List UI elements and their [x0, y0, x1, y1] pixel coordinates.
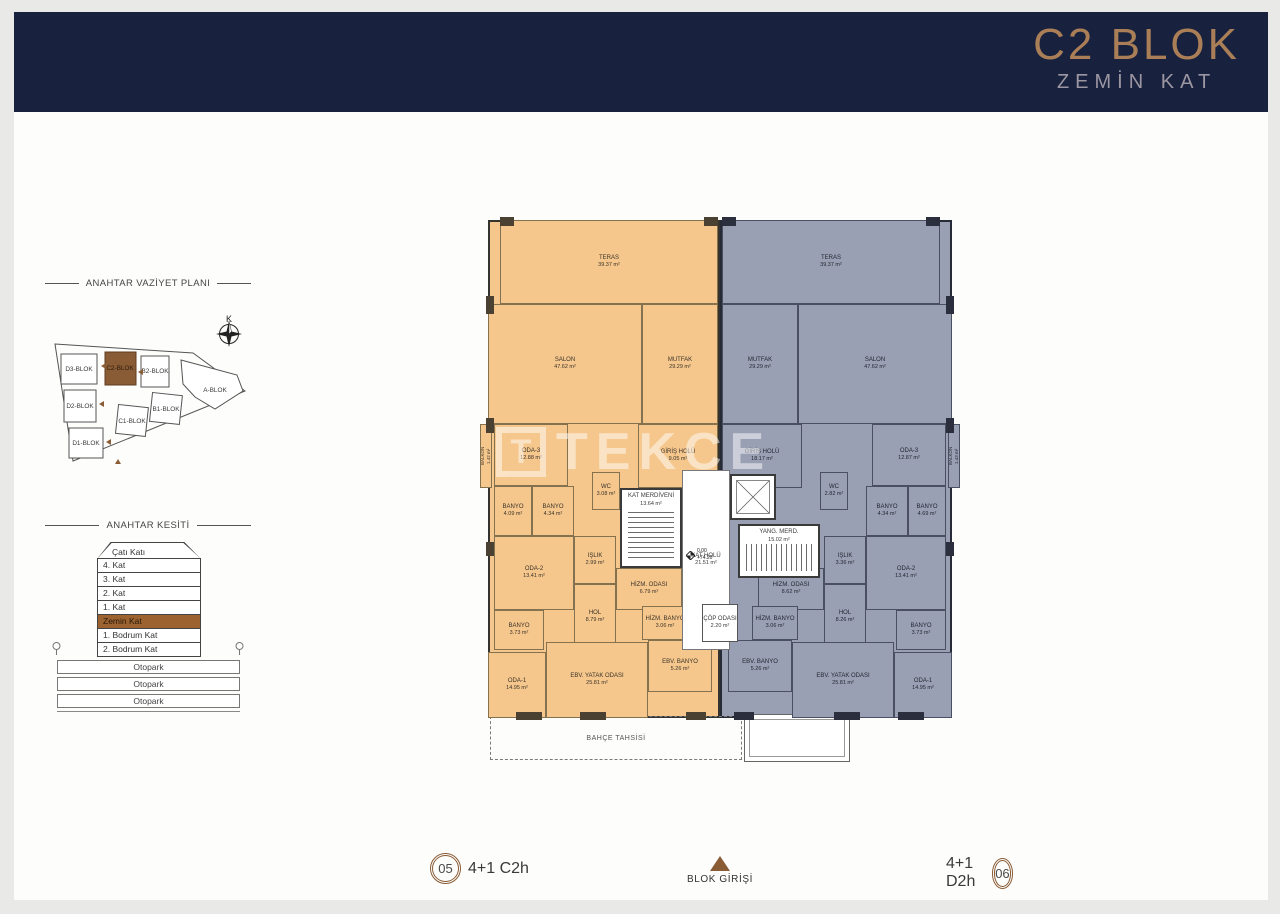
wall-pier [734, 712, 754, 720]
svg-text:D1-BLOK: D1-BLOK [72, 440, 100, 447]
parking-row: Otopark [57, 660, 240, 674]
room-banyo: BANYO4.09 m² [494, 486, 532, 536]
room-oda-1: ODA-114.95 m² [894, 652, 952, 718]
room-teras: TERAS39.37 m² [722, 220, 940, 304]
room-banyo: BANYO4.34 m² [866, 486, 908, 536]
site-plan-map: D3-BLOK C2-BLOK B2-BLOK A-BLOK D2-BLOK B… [45, 296, 251, 468]
room-hol: HOL8.26 m² [824, 584, 866, 650]
floor-plan: 0.00 +74.20 BAHÇE TAHSİSİ T TEKCE TERAS3… [480, 212, 970, 764]
site-plan-header: ANAHTAR VAZİYET PLANI [45, 278, 251, 289]
room-hi-zm-odasi: HİZM. ODASI6.79 m² [616, 568, 682, 610]
wall-pier [500, 217, 514, 226]
floor-row: 2. Kat [97, 586, 201, 601]
room-teras: TERAS39.37 m² [500, 220, 718, 304]
room-banyo: BANYO4.34 m² [532, 486, 574, 536]
entrance-canopy [744, 714, 850, 762]
room-elevator [730, 474, 776, 520]
unit-type-label: 4+1 D2h [946, 855, 985, 891]
room-yang-merd: YANG. MERD.15.02 m² [738, 524, 820, 578]
room-oda-3: ODA-312.88 m² [494, 424, 568, 486]
room-wc: WC3.08 m² [592, 472, 620, 510]
room-ebv-yatak-odasi: EBV. YATAK ODASI25.81 m² [792, 642, 894, 718]
page: C2 BLOK ZEMİN KAT ANAHTAR VAZİYET PLANI [0, 0, 1280, 914]
room-p-odasi: ÇÖP ODASI2.20 m² [702, 604, 738, 642]
unit-type-label: 4+1 C2h [468, 860, 529, 878]
ground-baseline [57, 711, 240, 712]
wall-pier [834, 712, 860, 720]
unit-number-circle: 06 [994, 860, 1012, 887]
key-section-diagram: Çatı Katı 4. Kat3. Kat2. Kat1. KatZemin … [55, 542, 241, 712]
room-oda-3: ODA-312.87 m² [872, 424, 946, 486]
tree-icon [234, 642, 245, 655]
wall-pier [486, 296, 494, 314]
svg-text:A-BLOK: A-BLOK [203, 387, 227, 394]
room-ebv-yatak-odasi: EBV. YATAK ODASI25.81 m² [546, 642, 648, 718]
room-oda-1: ODA-114.95 m² [488, 652, 546, 718]
floor-plan-area: 0.00 +74.20 BAHÇE TAHSİSİ T TEKCE TERAS3… [480, 212, 980, 772]
room-banyo: BANYO3.73 m² [494, 610, 544, 650]
room-banyo: BANYO3.73 m² [896, 610, 946, 650]
room-balkon: BALKON1.43 m² [948, 424, 960, 488]
room-kat-merdi-veni: KAT MERDİVENİ13.64 m² [620, 488, 682, 568]
divider-line [197, 525, 251, 526]
divider-line [217, 283, 251, 284]
entrance-label: BLOK GİRİŞİ [687, 874, 753, 885]
room-hol: HOL8.79 m² [574, 584, 616, 650]
level-diamond-icon [686, 551, 695, 560]
room-salon: SALON47.62 m² [798, 304, 952, 424]
svg-text:B2-BLOK: B2-BLOK [142, 368, 170, 375]
elevation-marker: 0.00 +74.20 [686, 548, 712, 562]
unit-tag-left: 05 4+1 C2h [432, 855, 529, 882]
wall-pier [580, 712, 606, 720]
room-i-lik: IŞLIK3.36 m² [824, 536, 866, 584]
section-header: ANAHTAR KESİTİ [45, 520, 251, 531]
svg-text:C2-BLOK: C2-BLOK [106, 365, 134, 372]
wall-pier [946, 296, 954, 314]
entrance-arrow-icon [710, 856, 730, 871]
wall-pier [926, 217, 940, 226]
parking-row: Otopark [57, 694, 240, 708]
wall-pier [898, 712, 924, 720]
svg-text:B1-BLOK: B1-BLOK [153, 406, 181, 413]
floor-row: 1. Kat [97, 600, 201, 615]
header-bar: C2 BLOK ZEMİN KAT [14, 12, 1268, 112]
section-title: ANAHTAR KESİTİ [106, 520, 189, 531]
room-wc: WC2.82 m² [820, 472, 848, 510]
room-banyo: BANYO4.69 m² [908, 486, 946, 536]
room-balkon: BALKON1.42 m² [480, 424, 492, 488]
roof-floor: Çatı Katı [97, 542, 201, 559]
svg-text:D3-BLOK: D3-BLOK [65, 366, 93, 373]
section-floors: 4. Kat3. Kat2. Kat1. KatZemin Kat1. Bodr… [55, 558, 241, 657]
parking-row: Otopark [57, 677, 240, 691]
wall-pier [516, 712, 542, 720]
wall-pier [486, 418, 494, 433]
section-parking: OtoparkOtoparkOtopark [55, 660, 241, 708]
roof-label: Çatı Katı [97, 547, 145, 557]
wall-pier [722, 217, 736, 226]
title-wrap: C2 BLOK ZEMİN KAT [1033, 20, 1240, 94]
tree-icon [51, 642, 62, 655]
wall-pier [946, 418, 954, 433]
north-compass-icon: K [216, 314, 242, 347]
unit-number-circle: 05 [432, 855, 459, 882]
wall-pier [486, 542, 494, 556]
block-entrance: BLOK GİRİŞİ [660, 856, 780, 885]
svg-text:D2-BLOK: D2-BLOK [66, 403, 94, 410]
svg-text:C1-BLOK: C1-BLOK [118, 418, 146, 425]
garden-allocation: BAHÇE TAHSİSİ [490, 716, 742, 760]
floor-row: 3. Kat [97, 572, 201, 587]
floor-subtitle: ZEMİN KAT [1033, 71, 1240, 94]
room-oda-2: ODA-213.41 m² [866, 536, 946, 610]
room-hi-zm-banyo: HİZM. BANYO3.06 m² [752, 606, 798, 640]
elevation-values: 0.00 +74.20 [697, 548, 712, 562]
room-mutfak: MUTFAK29.29 m² [642, 304, 718, 424]
wall-pier [946, 542, 954, 556]
room-mutfak: MUTFAK29.29 m² [722, 304, 798, 424]
floor-row: 2. Bodrum Kat [97, 642, 201, 657]
divider-line [45, 525, 99, 526]
room-salon: SALON47.62 m² [488, 304, 642, 424]
divider-line [45, 283, 79, 284]
wall-pier [704, 217, 718, 226]
wall-pier [686, 712, 706, 720]
block-title: C2 BLOK [1033, 20, 1240, 70]
site-plan-title: ANAHTAR VAZİYET PLANI [86, 278, 211, 289]
room-ebv-banyo: EBV. BANYO5.26 m² [728, 640, 792, 692]
unit-tag-right: 4+1 D2h 06 [946, 855, 1011, 891]
floor-row: Zemin Kat [97, 614, 201, 629]
content: ANAHTAR VAZİYET PLANI D3-BLOK C2-BLOK B2… [14, 112, 1268, 900]
floor-row: 1. Bodrum Kat [97, 628, 201, 643]
room-oda-2: ODA-213.41 m² [494, 536, 574, 610]
floor-row: 4. Kat [97, 558, 201, 573]
elevation-level: 0.00 [697, 548, 712, 555]
elevation-alt: +74.20 [697, 555, 712, 562]
room-i-lik: IŞLIK2.99 m² [574, 536, 616, 584]
